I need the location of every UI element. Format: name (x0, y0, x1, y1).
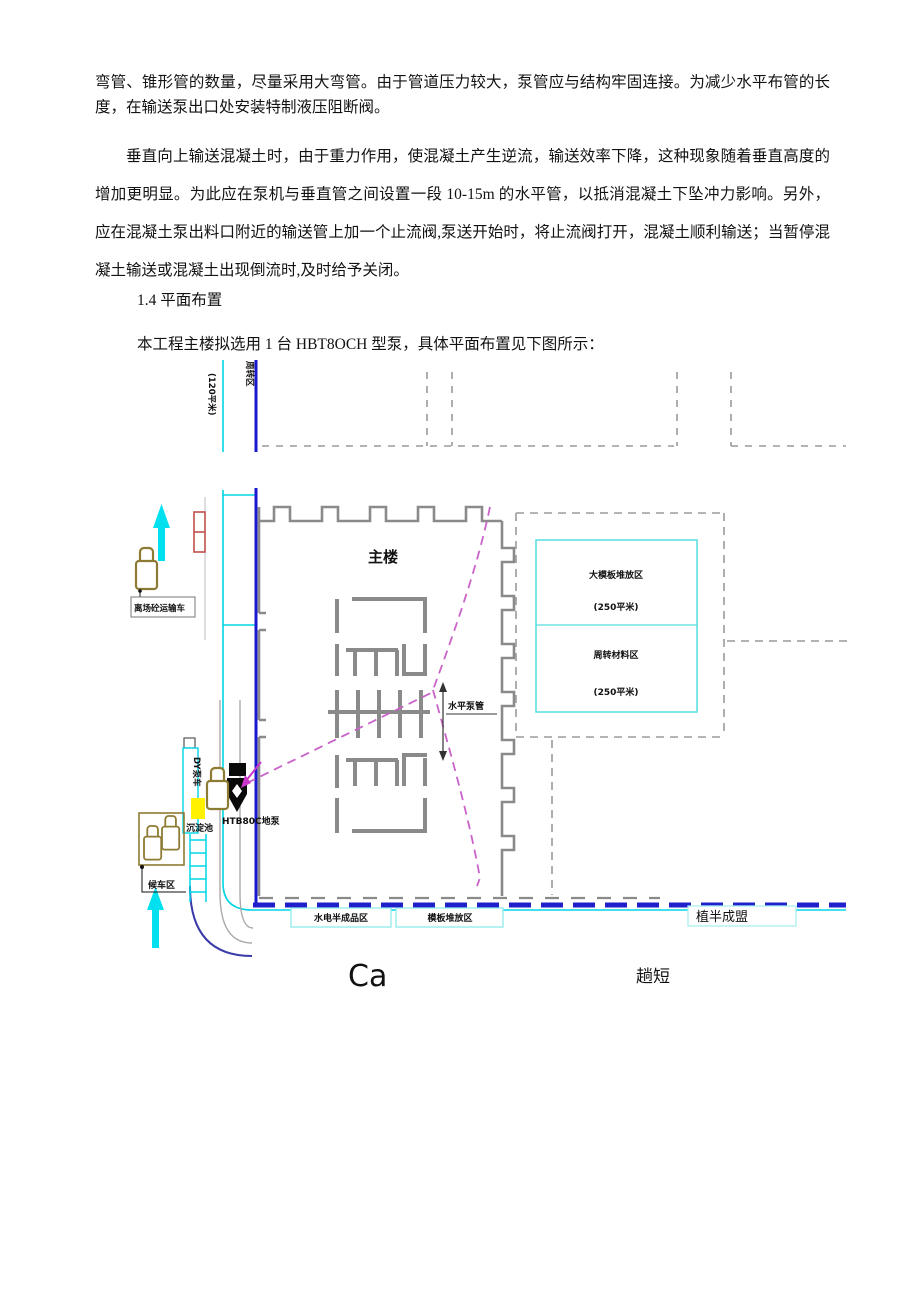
sediment-pool (191, 798, 205, 819)
leaving-truck-label: 离场砼运输车 (134, 603, 186, 614)
hydropower-zone-label: 水电半成品区 (314, 912, 368, 924)
flow-arrow-up-bottom (147, 887, 164, 948)
diagram-captions: Ca 趟短 (348, 959, 670, 994)
formwork-zone-title: 大模板堆放区 (589, 569, 643, 581)
south-label-boxes: 水电半成品区 模板堆放区 植半成盟 (291, 906, 796, 927)
storage-zones-box (536, 540, 697, 712)
crossing-ladder (190, 834, 206, 902)
west-side-features: 离场砼运输车 DY泵车 沉淀池 候车区 (131, 504, 228, 948)
waiting-truck-icon (162, 816, 179, 850)
building-unit-middle (328, 690, 430, 738)
paragraph-1: 弯管、锥形管的数量，尽量采用大弯管。由于管道压力较大，泵管应与结构牢固连接。为减… (95, 70, 830, 120)
right-note-label: 植半成盟 (696, 909, 748, 924)
document-page: 弯管、锥形管的数量，尽量采用大弯管。由于管道压力较大，泵管应与结构牢固连接。为减… (0, 0, 920, 1301)
pump-feeding-truck-icon (207, 768, 228, 809)
waiting-area-label: 候车区 (148, 879, 175, 891)
pump-truck-lane-label: DY泵车 (191, 757, 202, 787)
building-unit-bottom (337, 753, 427, 833)
north-boundary-strip: (120平米) 周转区 (206, 360, 846, 452)
west-road (190, 488, 846, 956)
leaving-truck-icon (136, 548, 157, 589)
horizontal-pipe-dimension: 水平泵管 (439, 682, 497, 761)
turnover-material-title: 周转材料区 (593, 649, 638, 661)
horizontal-pipe-label: 水平泵管 (448, 700, 484, 712)
pump-station: HTB80C地泵 (222, 762, 281, 827)
main-building-label: 主楼 (368, 548, 398, 566)
paragraph-3: 本工程主楼拟选用 1 台 HBT8OCH 型泵，具体平面布置见下图所示： (137, 334, 857, 356)
formwork-zone-area: (250平米) (593, 601, 638, 613)
waiting-truck-icon (144, 826, 161, 860)
turnover-material-area: (250平米) (593, 686, 638, 698)
building-unit-top (337, 599, 427, 676)
area-120-label: (120平米) (206, 373, 217, 416)
formwork-stack-zone-label: 模板堆放区 (427, 912, 472, 924)
caption-ca: Ca (348, 959, 387, 994)
pump-unit-label: HTB80C地泵 (222, 815, 281, 827)
site-dashed-limits (262, 372, 846, 446)
section-heading: 1.4 平面布置 (137, 288, 222, 310)
turnover-zone-label: 周转区 (244, 361, 255, 387)
paragraph-2: 垂直向上输送混凝土时，由于重力作用，使混凝土产生逆流，输送效率下降，这种现象随着… (95, 138, 830, 290)
site-plan-diagram: (120平米) 周转区 (130, 355, 850, 1000)
east-storage-zones: 大模板堆放区 (250平米) 周转材料区 (250平米) (516, 513, 848, 895)
sediment-pool-label: 沉淀池 (186, 822, 213, 834)
caption-right: 趟短 (636, 967, 670, 986)
flow-arrow-up-top (153, 504, 170, 561)
